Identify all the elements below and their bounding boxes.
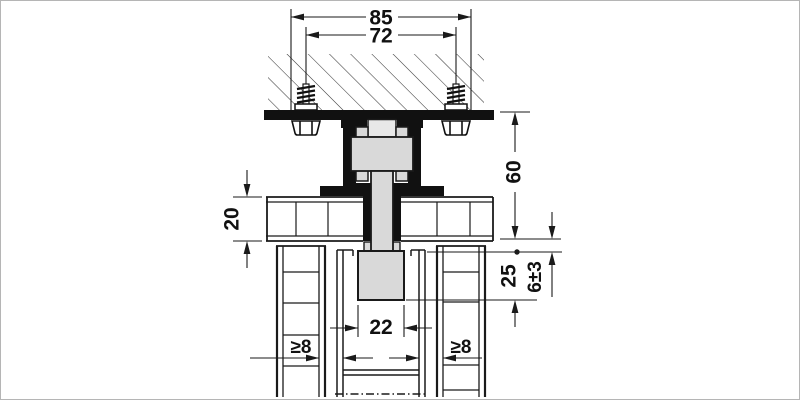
hex-bolt-head-left xyxy=(292,121,320,135)
dim-label-22: 22 xyxy=(369,316,392,339)
dim-label-20: 20 xyxy=(221,207,244,230)
dim-label-25: 25 xyxy=(498,264,521,288)
hex-bolt-head-right xyxy=(442,121,470,135)
dim-label-gap: 6±3 xyxy=(525,261,546,293)
reference-dot xyxy=(514,249,519,254)
roller-body xyxy=(351,137,413,171)
dim-label-min-left: ≥8 xyxy=(291,337,312,358)
roller-connector xyxy=(368,120,396,138)
technical-drawing-canvas: 85 72 60 20 xyxy=(0,0,800,400)
dim-label-60: 60 xyxy=(503,160,526,183)
ceiling-cutout-edge-left xyxy=(363,196,371,241)
dim-label-min-right: ≥8 xyxy=(451,337,472,358)
mounting-plate xyxy=(264,110,494,120)
dim-label-72: 72 xyxy=(369,25,392,48)
ceiling-cutout-edge-right xyxy=(393,196,401,241)
cross-section-diagram: 85 72 60 20 xyxy=(0,0,800,400)
suspension-block xyxy=(358,251,404,300)
